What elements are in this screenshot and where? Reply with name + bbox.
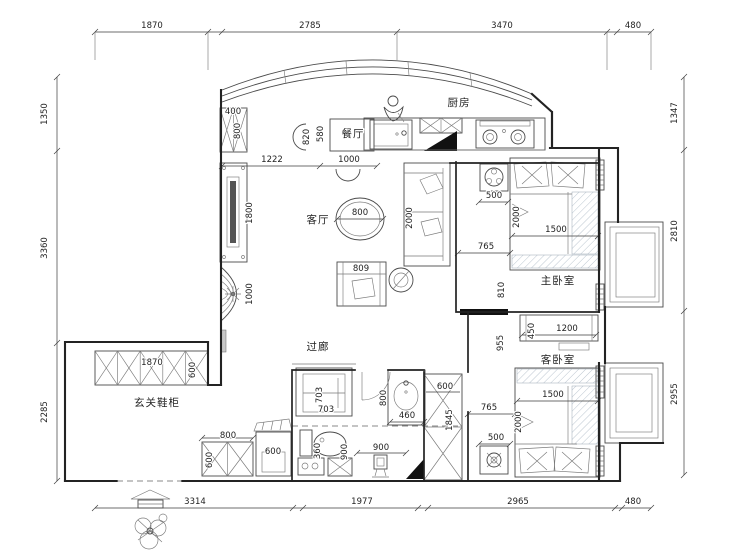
dim-top-1: 1870 (141, 21, 163, 31)
dim-corridor-segment: 955 (496, 335, 506, 351)
dim-toilet: 360 (313, 443, 323, 459)
dim-wardrobe-height: 1845 (445, 409, 455, 431)
room-label-living: 客厅 (307, 213, 330, 226)
dim-bench-width: 800 (220, 431, 236, 441)
mirror-console-icon (372, 455, 389, 477)
fridge-icon (424, 131, 457, 151)
dim-guest-cabinet-depth: 450 (527, 323, 537, 339)
room-label-master-bedroom: 主卧室 (541, 274, 576, 287)
dim-guest-bed-width: 1500 (542, 390, 564, 400)
dim-dining-table-depth: 580 (316, 126, 326, 142)
swivel-chair-icon (389, 268, 413, 292)
dim-top-4: 480 (625, 21, 641, 31)
dim-guest-gap: 765 (481, 403, 497, 413)
upper-cabinet-icon (420, 118, 462, 133)
nightstand-icon (480, 164, 508, 191)
dim-lid-cabinet: 600 (265, 447, 281, 457)
dim-shoe-cabinet-depth: 600 (188, 362, 198, 378)
dim-bottom-4: 480 (625, 497, 641, 507)
tv-cabinet-icon (220, 163, 247, 262)
dining-chair-icon (336, 169, 360, 181)
dim-left-1: 1350 (40, 103, 50, 125)
dim-right-3: 2955 (670, 383, 680, 405)
room-label-guest-bedroom: 客卧室 (541, 353, 576, 366)
tea-table-icon (334, 198, 386, 240)
dim-cabinet-depth: 800 (233, 123, 243, 139)
nightstand-lamp-icon (480, 446, 508, 474)
dim-master-nightstand: 500 (486, 191, 502, 201)
dim-sink-depth: 800 (379, 390, 389, 406)
dim-dining-chair: 820 (302, 129, 312, 145)
room-label-kitchen: 厨房 (448, 96, 471, 109)
dim-armchair: 809 (353, 264, 369, 274)
dim-master-gap: 765 (478, 242, 494, 252)
bed-icon (515, 368, 600, 477)
door-triangle-icon (406, 459, 424, 479)
room-label-dining: 餐厅 (342, 127, 365, 140)
bay-window (222, 60, 552, 148)
dim-bottom-3: 2965 (507, 497, 529, 507)
dim-wardrobe-width: 600 (437, 382, 453, 392)
dim-sofa-length: 2000 (405, 207, 415, 229)
master-bedroom-furniture (455, 158, 601, 315)
dim-bench-depth: 600 (205, 452, 215, 468)
dim-top-2: 2785 (299, 21, 321, 31)
room-label-corridor: 过廊 (307, 340, 330, 353)
dim-washer-width: 703 (318, 405, 334, 415)
dim-washer-depth: 703 (315, 387, 325, 403)
dim-left-3: 2285 (40, 401, 50, 423)
dim-guest-cabinet-width: 1200 (556, 324, 578, 334)
dim-bottom-1: 3314 (184, 497, 206, 507)
dim-sink-width: 460 (399, 411, 415, 421)
faucet-icon (402, 131, 406, 135)
dim-shoe-cabinet-width: 1870 (141, 358, 163, 368)
dim-cabinet-width: 400 (225, 107, 241, 117)
dim-top-3: 3470 (491, 21, 513, 31)
dim-tea-table: 800 (352, 208, 368, 218)
dim-master-bed-width: 1500 (545, 225, 567, 235)
master-balcony (605, 222, 663, 307)
dim-plant-shelf: 1000 (245, 283, 255, 305)
room-label-entry: 玄关鞋柜 (134, 396, 180, 409)
dim-left-2: 3360 (40, 237, 50, 259)
dim-bottom-2: 1977 (351, 497, 373, 507)
guest-balcony (605, 363, 663, 443)
plant-icon (225, 286, 241, 302)
bed-icon (510, 158, 600, 270)
dim-right-2: 2810 (670, 220, 680, 242)
dim-master-bed-length: 2000 (512, 206, 522, 228)
entry-canopy-icon (131, 490, 170, 508)
dimension-chain-left: 1350 3360 2285 (40, 74, 60, 484)
dimension-chain-bottom: 3314 1977 2965 480 (92, 497, 654, 511)
dimension-chain-right: 1347 2810 2955 (670, 74, 687, 478)
dim-master-door: 810 (497, 282, 507, 298)
dim-dining-offset: 1222 (261, 155, 283, 165)
dim-dining-table-width: 1000 (338, 155, 360, 165)
dim-bath: 900 (340, 444, 350, 460)
entry-plant-icon (135, 514, 167, 549)
stove-icon (476, 120, 534, 148)
room-labels: 厨房 餐厅 客厅 主卧室 客卧室 过廊 玄关鞋柜 (134, 96, 575, 409)
floor-plan-page: 1870 2785 3470 480 3314 1977 2965 480 13… (0, 0, 740, 555)
dim-guest-nightstand: 500 (488, 433, 504, 443)
plant-shelf-icon (221, 267, 241, 321)
dim-tv-wall: 1800 (245, 202, 255, 224)
floor-plan-canvas: 1870 2785 3470 480 3314 1977 2965 480 13… (0, 0, 740, 555)
dim-corridor-width: 900 (373, 443, 389, 453)
dim-right-1: 1347 (670, 102, 680, 124)
dim-guest-bed-length: 2000 (514, 411, 524, 433)
dimension-chain-top: 1870 2785 3470 480 (92, 21, 654, 70)
cabinet-knobs-icon (298, 458, 324, 475)
dining-furniture (219, 108, 380, 181)
